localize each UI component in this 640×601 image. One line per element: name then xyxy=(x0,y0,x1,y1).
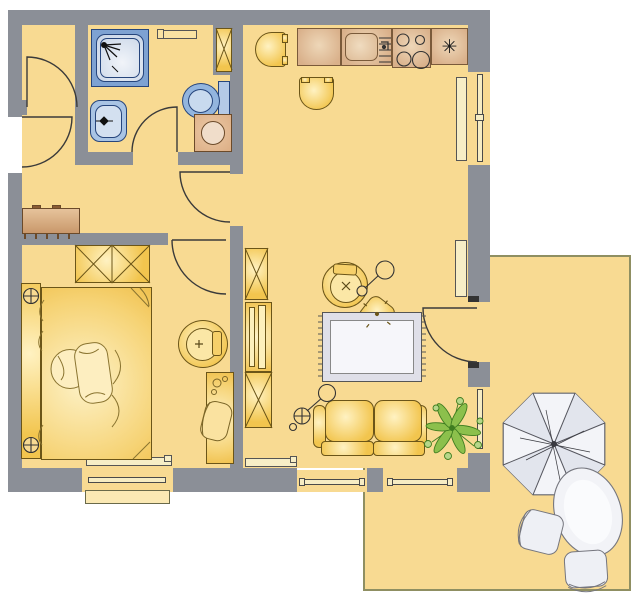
kitchen-freezer: ✳ xyxy=(431,28,468,65)
bedroom-window-sill xyxy=(85,490,170,504)
living-armchair-seat xyxy=(330,271,362,303)
bedroom-round-chair-cushion xyxy=(212,331,222,356)
radiator-living-east-1 xyxy=(456,77,467,161)
sofa-cushion-right xyxy=(374,400,422,442)
bathroom-shelf-bracket xyxy=(157,29,164,39)
toilet-bowl-inner xyxy=(188,89,213,113)
bed-mattress xyxy=(41,287,152,460)
window-frame-south-2 xyxy=(389,479,451,485)
radiator-living-east-2 xyxy=(455,240,467,297)
window-frame-south-2-jamb-r xyxy=(447,478,453,486)
radiator-bedroom-valve xyxy=(164,455,172,462)
terrace-door-opening xyxy=(468,302,490,362)
wall-top xyxy=(8,10,490,25)
washing-machine-drum xyxy=(201,121,225,145)
sofa-seat-right xyxy=(373,441,425,456)
window-frame-south-2-jamb-l xyxy=(387,478,393,486)
window-frame-south-1-jamb-l xyxy=(299,478,305,486)
kitchen-worktop xyxy=(297,28,341,66)
hall-sideboard-handle-2 xyxy=(52,205,61,209)
dining-chair-1-arm-bottom xyxy=(282,56,288,65)
sofa-cushion-left xyxy=(325,400,374,442)
sofa-seat-left xyxy=(321,441,374,456)
window-frame-south-1 xyxy=(301,479,363,485)
radiator-living-south-valve xyxy=(290,456,297,463)
dining-chair-1-arm-top xyxy=(282,34,288,43)
hall-sideboard-feet xyxy=(24,234,78,239)
living-shelf-inner-1 xyxy=(249,307,255,367)
window-frame-bedroom xyxy=(88,477,166,483)
duct-tall-cabinet xyxy=(216,28,232,72)
bedroom-desk xyxy=(206,372,234,464)
wall-right-1 xyxy=(468,25,490,72)
wall-left-lower xyxy=(8,173,22,492)
window-frame-east-1-mullion xyxy=(475,114,484,121)
kitchen-stove xyxy=(392,28,431,68)
bed-headboard xyxy=(21,283,41,459)
terrace-door-jamb-top xyxy=(468,296,479,302)
kitchen-sink-bowl xyxy=(345,33,378,61)
hall-sideboard xyxy=(22,208,80,234)
living-shelf-inner-2 xyxy=(258,305,266,369)
window-frame-south-1-jamb-r xyxy=(359,478,365,486)
washbasin-bowl xyxy=(95,105,122,138)
wall-bottom-3 xyxy=(367,468,383,492)
window-frame-east-2 xyxy=(477,389,483,449)
wall-right-4 xyxy=(468,453,490,492)
wall-bottom-1 xyxy=(8,468,82,492)
hall-sideboard-handle-1 xyxy=(32,205,41,209)
living-armchair-cushion xyxy=(333,263,358,275)
bathroom-wall-west xyxy=(75,25,88,165)
living-cabinet-x-1 xyxy=(245,248,268,300)
wall-left-upper xyxy=(8,10,22,117)
dining-chair-2-arm-right xyxy=(324,77,333,83)
closet-wall-stub-west xyxy=(22,100,27,115)
wall-bottom-2 xyxy=(173,468,297,492)
terrace-door-jamb-bottom xyxy=(468,362,479,368)
shower-tray-inner xyxy=(100,38,140,78)
dining-chair-2-arm-left xyxy=(301,77,310,83)
bathroom-shelf xyxy=(163,30,197,39)
bedroom-wardrobe xyxy=(75,245,150,283)
freezer-symbol: ✳ xyxy=(442,36,458,58)
bathroom-wall-south-a xyxy=(75,152,133,165)
living-cabinet-x-2 xyxy=(245,372,272,428)
rug-field xyxy=(330,320,414,374)
floor-plan: ✳ xyxy=(0,0,640,601)
wall-right-2 xyxy=(468,165,490,302)
